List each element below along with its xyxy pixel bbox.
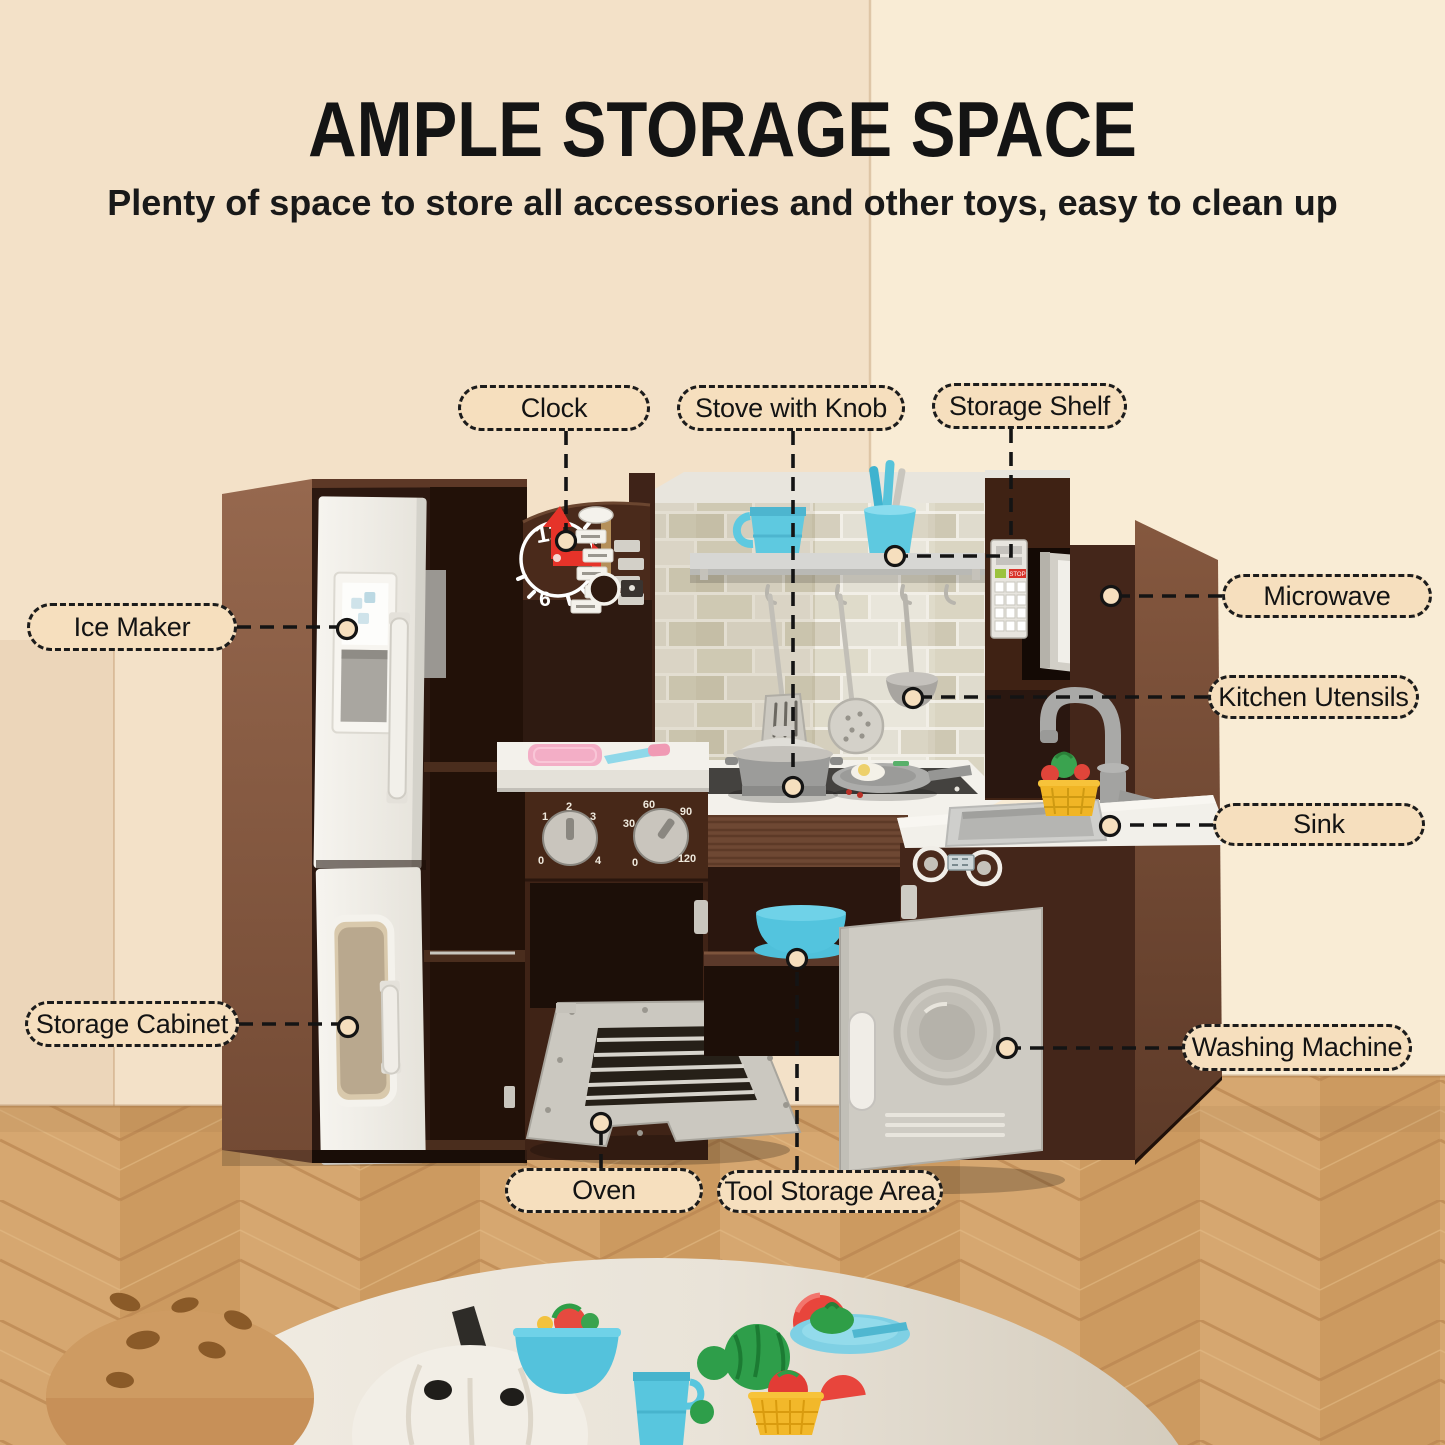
endpoint-ice-maker [338,620,357,639]
endpoint-oven [592,1114,611,1133]
label-tool-storage-area: Tool Storage Area [717,1170,943,1213]
connector-storage-shelf [902,429,1011,556]
endpoint-microwave [1102,587,1121,606]
label-sink: Sink [1213,803,1425,846]
label-storage-cabinet: Storage Cabinet [25,1001,239,1047]
page-subtitle: Plenty of space to store all accessories… [0,182,1445,224]
endpoint-clock [557,532,576,551]
label-oven: Oven [505,1168,703,1213]
label-stove-with-knob: Stove with Knob [677,385,905,431]
endpoint-storage-cabinet [339,1018,358,1037]
product-infographic: 12 3 6 [0,0,1445,1445]
label-washing-machine: Washing Machine [1182,1024,1412,1071]
endpoint-stove [784,778,803,797]
page-title: AMPLE STORAGE SPACE [101,84,1344,175]
endpoint-sink [1101,817,1120,836]
label-storage-shelf: Storage Shelf [932,383,1127,429]
endpoint-washing-machine [998,1039,1017,1058]
label-microwave: Microwave [1222,574,1432,618]
endpoint-storage-shelf [886,547,905,566]
label-clock: Clock [458,385,650,431]
label-ice-maker: Ice Maker [27,603,237,651]
endpoint-kitchen-utensils [904,689,923,708]
endpoint-tool-storage [788,950,807,969]
label-kitchen-utensils: Kitchen Utensils [1208,675,1419,719]
